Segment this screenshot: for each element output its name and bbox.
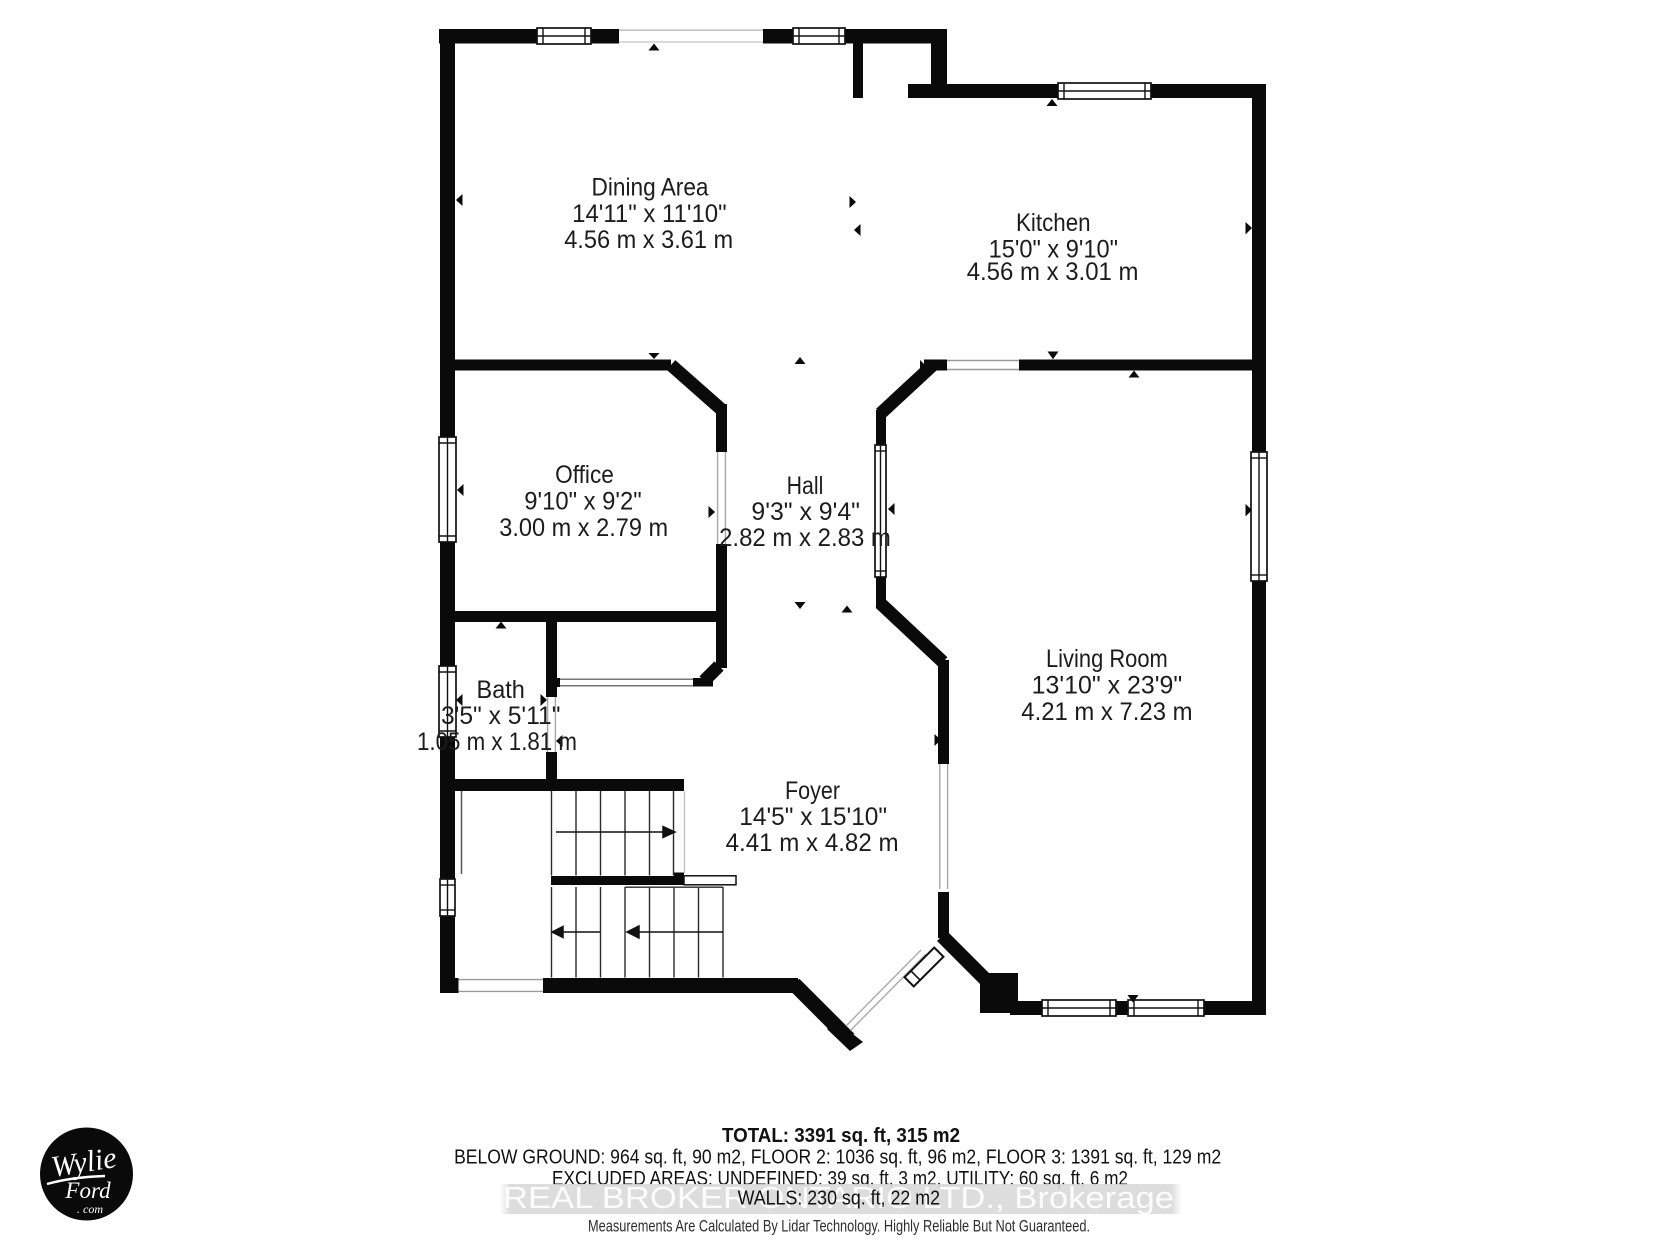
svg-text:Office: Office (555, 461, 614, 489)
svg-text:14'5" x 15'10": 14'5" x 15'10" (739, 803, 887, 831)
svg-text:4.56 m x 3.61 m: 4.56 m x 3.61 m (564, 226, 733, 254)
svg-text:3'5" x 5'11": 3'5" x 5'11" (441, 702, 561, 730)
svg-text:3.00 m x 2.79 m: 3.00 m x 2.79 m (499, 514, 668, 542)
svg-text:Kitchen: Kitchen (1016, 209, 1091, 237)
svg-text:9'10" x 9'2": 9'10" x 9'2" (524, 488, 641, 516)
svg-text:Hall: Hall (787, 472, 824, 500)
svg-text:4.41 m x 4.82 m: 4.41 m x 4.82 m (726, 829, 899, 857)
svg-text:WALLS: 230 sq. ft, 22 m2: WALLS: 230 sq. ft, 22 m2 (738, 1188, 940, 1210)
svg-text:Living Room: Living Room (1046, 645, 1168, 673)
svg-text:1.05 m x 1.81 m: 1.05 m x 1.81 m (417, 728, 577, 756)
svg-text:4.21 m x 7.23 m: 4.21 m x 7.23 m (1021, 698, 1192, 726)
svg-text:Dining Area: Dining Area (592, 174, 709, 202)
svg-text:. com: . com (77, 1202, 103, 1216)
svg-text:BELOW GROUND: 964 sq. ft, 90 m: BELOW GROUND: 964 sq. ft, 90 m2, FLOOR 2… (454, 1147, 1221, 1169)
svg-text:Bath: Bath (477, 676, 525, 704)
svg-text:14'11" x 11'10": 14'11" x 11'10" (572, 200, 727, 228)
svg-text:4.56 m x 3.01 m: 4.56 m x 3.01 m (967, 258, 1139, 286)
svg-text:Measurements Are Calculated By: Measurements Are Calculated By Lidar Tec… (588, 1218, 1090, 1236)
svg-text:9'3" x 9'4": 9'3" x 9'4" (751, 498, 860, 526)
svg-text:Ford: Ford (64, 1178, 111, 1203)
svg-text:Foyer: Foyer (785, 777, 840, 805)
svg-text:13'10" x 23'9": 13'10" x 23'9" (1032, 672, 1183, 700)
svg-text:2.82 m x 2.83 m: 2.82 m x 2.83 m (719, 524, 891, 552)
svg-text:TOTAL: 3391 sq. ft, 315 m2: TOTAL: 3391 sq. ft, 315 m2 (722, 1124, 960, 1147)
